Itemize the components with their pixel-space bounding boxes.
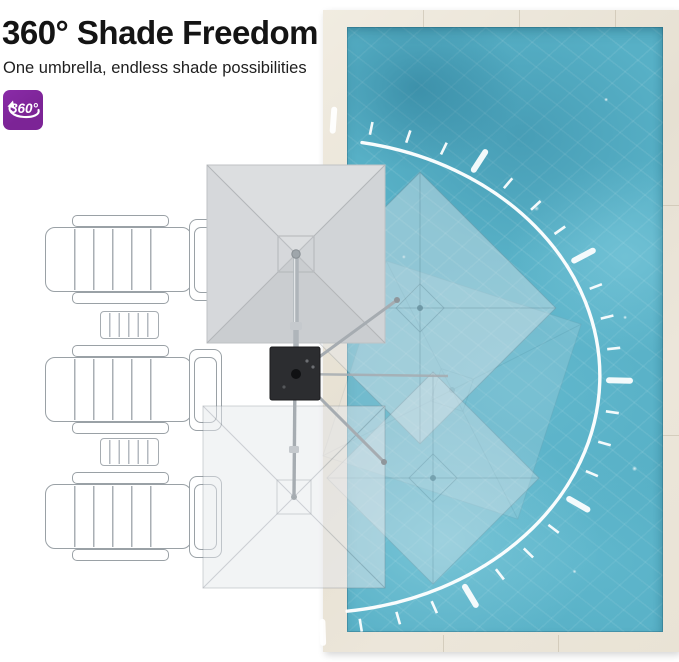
arc-tick xyxy=(474,152,485,170)
header: 360° Shade Freedom One umbrella, endless… xyxy=(2,14,318,78)
umbrella-base xyxy=(270,347,320,400)
arc-tick xyxy=(548,525,558,533)
arc-tick xyxy=(333,110,335,131)
page-title: 360° Shade Freedom xyxy=(2,14,318,52)
arc-tick xyxy=(555,227,566,235)
arc-tick xyxy=(598,442,611,446)
arc-tick xyxy=(574,251,593,261)
arc-tick xyxy=(360,619,362,632)
arc-tick xyxy=(569,499,587,510)
arc-tick xyxy=(601,316,614,319)
arm-end-knob xyxy=(381,459,387,465)
arc-tick xyxy=(504,178,512,188)
base-pivot xyxy=(291,369,301,379)
pole-collar xyxy=(289,446,299,453)
arc-tick xyxy=(496,569,504,579)
umbrella-rotation-diagram xyxy=(0,0,679,662)
arc-tick xyxy=(607,348,620,349)
pole-collar xyxy=(290,322,302,330)
arc-tick xyxy=(370,122,373,135)
arc-tick xyxy=(590,284,602,289)
arc-tick xyxy=(396,612,400,624)
arm-end-knob xyxy=(394,297,400,303)
arc-tick xyxy=(586,471,598,476)
arc-tick xyxy=(606,411,619,413)
arc-tick xyxy=(322,622,323,643)
rotation-badge: 360° xyxy=(3,90,43,130)
arc-tick xyxy=(432,601,437,613)
canopy-hub-knob xyxy=(292,250,300,258)
360-rotation-arrow-icon: 360° xyxy=(3,90,43,130)
arc-tick xyxy=(441,143,447,155)
arc-tick xyxy=(284,621,285,634)
arc-tick xyxy=(465,587,476,605)
arc-tick xyxy=(406,130,410,142)
arc-tick xyxy=(531,201,541,210)
arc-tick xyxy=(524,548,533,557)
product-infographic: 360° Shade Freedom One umbrella, endless… xyxy=(0,0,679,662)
page-subtitle: One umbrella, endless shade possibilitie… xyxy=(3,59,318,78)
